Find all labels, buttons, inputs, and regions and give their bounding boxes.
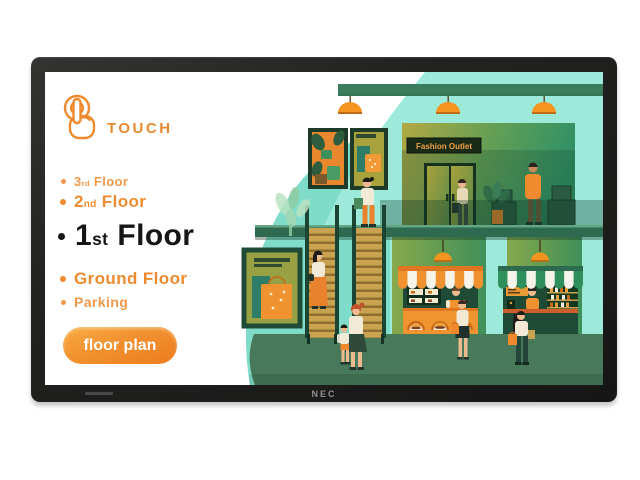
floor-poster [244, 250, 300, 326]
walkway-overlay [380, 200, 603, 225]
kiosk-shelves [547, 285, 578, 312]
floor-plan-button[interactable]: floor plan [63, 327, 177, 364]
nec-logo: NEC [31, 389, 617, 399]
floor-item-label: Ground Floor [74, 269, 187, 289]
floor-item-1st-selected[interactable]: 1stFloor [58, 219, 194, 253]
floor-item-parking[interactable]: Parking [61, 294, 128, 310]
touch-label: TOUCH [107, 120, 173, 146]
floor-item-3rd[interactable]: 3rdFloor [61, 174, 128, 189]
nec-display-monitor: Fashion Outlet [31, 57, 617, 402]
store-sign: Fashion Outlet [407, 138, 481, 153]
floor-item-2nd[interactable]: 2ndFloor [60, 192, 146, 212]
kiosk-menu-board [407, 287, 441, 305]
touch-screen: Fashion Outlet [45, 72, 603, 385]
pendant-lamp-1 [338, 96, 362, 114]
ceiling-beam [338, 84, 603, 96]
touch-callout: TOUCH [58, 94, 173, 146]
ground-floor-shade [249, 374, 603, 385]
kiosk-awning-2 [498, 266, 583, 289]
bullet-icon [60, 199, 66, 205]
floor-item-label: 2ndFloor [74, 192, 146, 212]
beverage-kiosk [498, 266, 583, 334]
floor-item-label: 1stFloor [75, 219, 194, 253]
food-kiosk [398, 266, 483, 334]
floor-item-ground[interactable]: Ground Floor [60, 269, 187, 289]
bullet-icon [61, 300, 66, 305]
bullet-icon [60, 276, 66, 282]
page: { "device": { "brand_logo": "NEC" }, "pa… [0, 0, 640, 480]
bullet-icon [58, 233, 65, 240]
kiosk-awning [398, 266, 483, 289]
bullet-icon [61, 179, 66, 184]
floor-item-label: Parking [74, 294, 128, 310]
wall-poster-leaves [308, 129, 347, 187]
touch-gesture-icon [58, 94, 98, 146]
floor-item-label: 3rdFloor [74, 174, 128, 189]
store-sign-text: Fashion Outlet [416, 142, 472, 151]
